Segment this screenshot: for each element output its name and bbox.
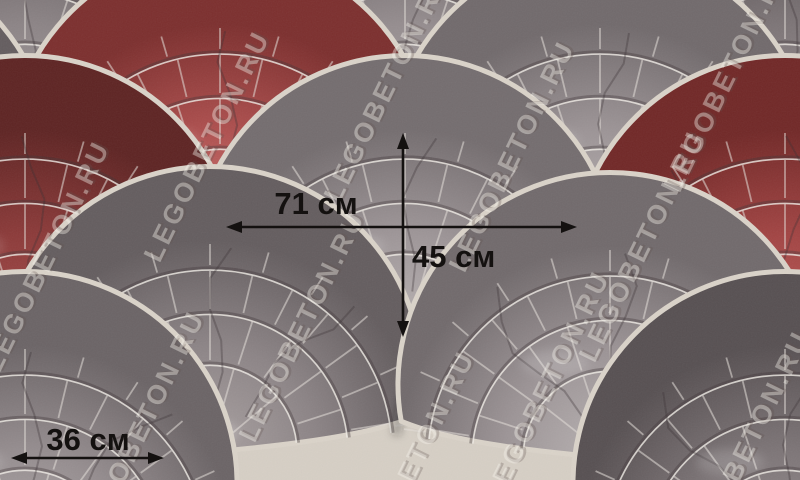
dimension-unit-label: 36 см [46, 422, 129, 457]
paving-pattern-canvas: LEGOBETON.RULEGOBETON.RULEGOBETON.RULEGO… [0, 0, 800, 480]
paving-slab-photo: LEGOBETON.RULEGOBETON.RULEGOBETON.RULEGO… [0, 0, 800, 480]
dimension-height-label: 45 см [412, 239, 495, 274]
dimension-width-label: 71 см [274, 186, 357, 221]
